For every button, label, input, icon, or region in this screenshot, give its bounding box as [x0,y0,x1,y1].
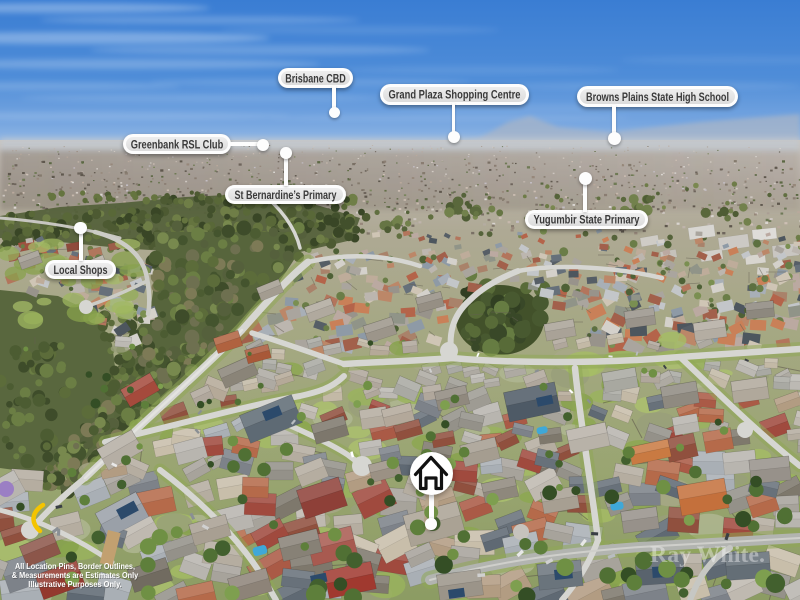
svg-text:Yugumbir State Primary: Yugumbir State Primary [534,213,640,227]
svg-text:Illustrative Purposes Only.: Illustrative Purposes Only. [28,579,122,589]
svg-text:Greenbank RSL Club: Greenbank RSL Club [131,137,224,151]
svg-text:Ray White.: Ray White. [650,542,765,567]
svg-text:Brisbane CBD: Brisbane CBD [285,71,346,85]
svg-text:Browns Plains State High Schoo: Browns Plains State High School [586,90,729,104]
svg-text:St Bernardine’s Primary: St Bernardine’s Primary [235,188,337,202]
svg-text:Grand Plaza Shopping Centre: Grand Plaza Shopping Centre [388,88,520,102]
svg-text:Local Shops: Local Shops [54,263,108,277]
